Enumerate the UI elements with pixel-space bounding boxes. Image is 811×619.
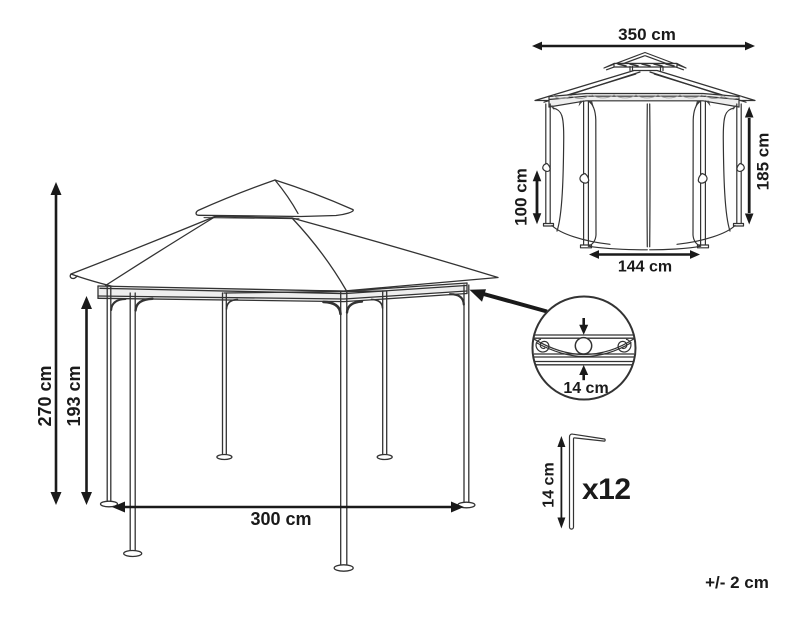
svg-text:185 cm: 185 cm (754, 133, 773, 191)
svg-text:14 cm: 14 cm (541, 462, 558, 507)
svg-text:350 cm: 350 cm (618, 25, 676, 44)
svg-text:300 cm: 300 cm (250, 509, 311, 529)
svg-text:100 cm: 100 cm (512, 168, 531, 226)
svg-text:x12: x12 (582, 473, 631, 506)
svg-text:270 cm: 270 cm (35, 365, 55, 426)
svg-text:144 cm: 144 cm (618, 259, 672, 276)
svg-text:14 cm: 14 cm (563, 380, 608, 397)
svg-text:+/- 2 cm: +/- 2 cm (705, 573, 769, 592)
svg-text:193 cm: 193 cm (64, 365, 84, 426)
